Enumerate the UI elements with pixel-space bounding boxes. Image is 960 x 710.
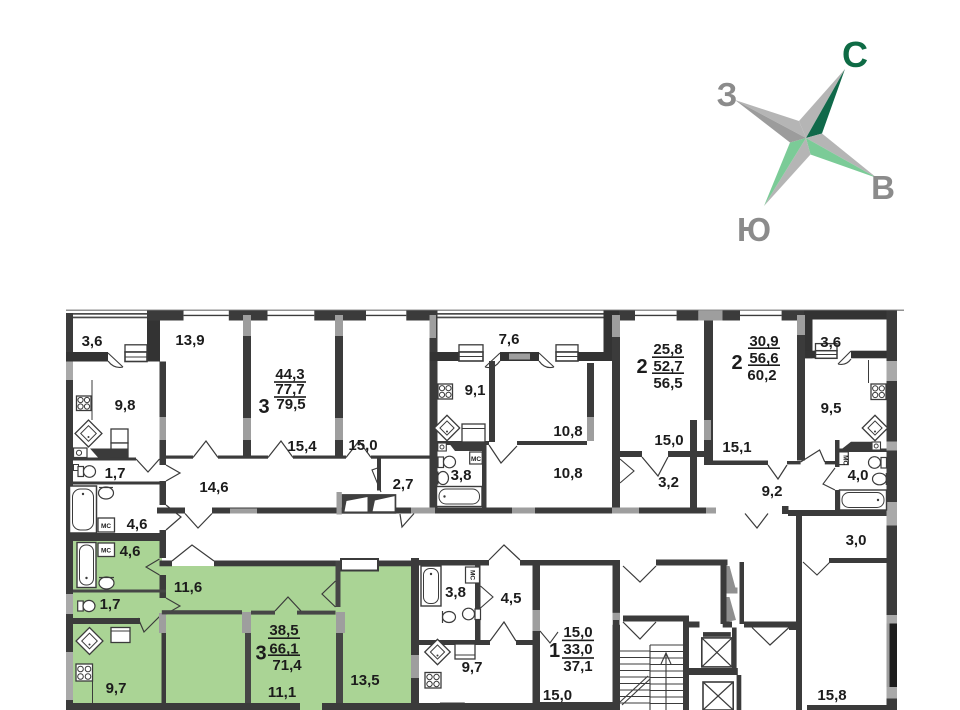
svg-text:З: З [717, 76, 738, 113]
svg-text:56,5: 56,5 [653, 375, 682, 392]
svg-text:1,7: 1,7 [105, 465, 126, 482]
svg-text:10,8: 10,8 [553, 423, 582, 440]
svg-text:11,6: 11,6 [174, 579, 202, 596]
svg-text:10,8: 10,8 [553, 465, 582, 482]
svg-text:13,9: 13,9 [175, 332, 204, 349]
svg-text:МС: МС [471, 456, 481, 463]
svg-text:МС: МС [469, 570, 476, 580]
svg-text:3,6: 3,6 [82, 333, 103, 350]
svg-text:15,1: 15,1 [722, 439, 751, 456]
svg-text:25,8: 25,8 [653, 341, 682, 358]
svg-text:38,5: 38,5 [269, 622, 298, 639]
svg-text:15,0: 15,0 [563, 624, 592, 641]
svg-text:2,7: 2,7 [393, 476, 414, 493]
svg-text:11,1: 11,1 [268, 684, 296, 701]
svg-text:33,0: 33,0 [563, 641, 592, 658]
svg-text:3: 3 [258, 396, 269, 418]
svg-text:9,7: 9,7 [462, 659, 483, 676]
svg-text:15,0: 15,0 [348, 437, 377, 454]
svg-text:15,4: 15,4 [287, 438, 317, 455]
svg-text:3,0: 3,0 [846, 532, 867, 549]
svg-text:15,8: 15,8 [817, 687, 846, 704]
svg-text:4,6: 4,6 [127, 516, 148, 533]
svg-text:1,7: 1,7 [100, 596, 121, 613]
svg-text:79,5: 79,5 [276, 396, 305, 413]
svg-text:15,0: 15,0 [543, 687, 572, 704]
svg-text:МС: МС [101, 548, 111, 555]
svg-text:4,5: 4,5 [501, 590, 522, 607]
svg-text:3,8: 3,8 [451, 467, 472, 484]
svg-text:4,6: 4,6 [120, 543, 141, 560]
svg-text:В: В [871, 169, 895, 206]
svg-text:1: 1 [549, 640, 560, 662]
svg-text:3,2: 3,2 [658, 474, 679, 491]
svg-text:13,5: 13,5 [350, 672, 379, 689]
svg-text:МС: МС [842, 455, 849, 465]
svg-text:14,6: 14,6 [199, 479, 228, 496]
svg-text:9,5: 9,5 [821, 400, 842, 417]
svg-text:9,2: 9,2 [762, 483, 783, 500]
svg-text:4,0: 4,0 [848, 467, 869, 484]
svg-text:71,4: 71,4 [272, 657, 302, 674]
svg-text:2: 2 [636, 356, 647, 378]
svg-text:3,8: 3,8 [445, 584, 466, 601]
svg-text:3: 3 [255, 643, 266, 665]
svg-text:С: С [842, 34, 868, 75]
svg-text:Ю: Ю [737, 211, 771, 248]
svg-text:2: 2 [731, 352, 742, 374]
svg-text:37,1: 37,1 [563, 658, 592, 675]
svg-text:МС: МС [101, 523, 111, 530]
svg-text:60,2: 60,2 [747, 367, 776, 384]
svg-text:9,1: 9,1 [465, 382, 486, 399]
svg-text:3,6: 3,6 [820, 334, 841, 351]
svg-text:7,6: 7,6 [499, 331, 520, 348]
svg-text:9,7: 9,7 [106, 680, 127, 697]
svg-text:9,8: 9,8 [115, 397, 136, 414]
svg-text:15,0: 15,0 [654, 432, 683, 449]
